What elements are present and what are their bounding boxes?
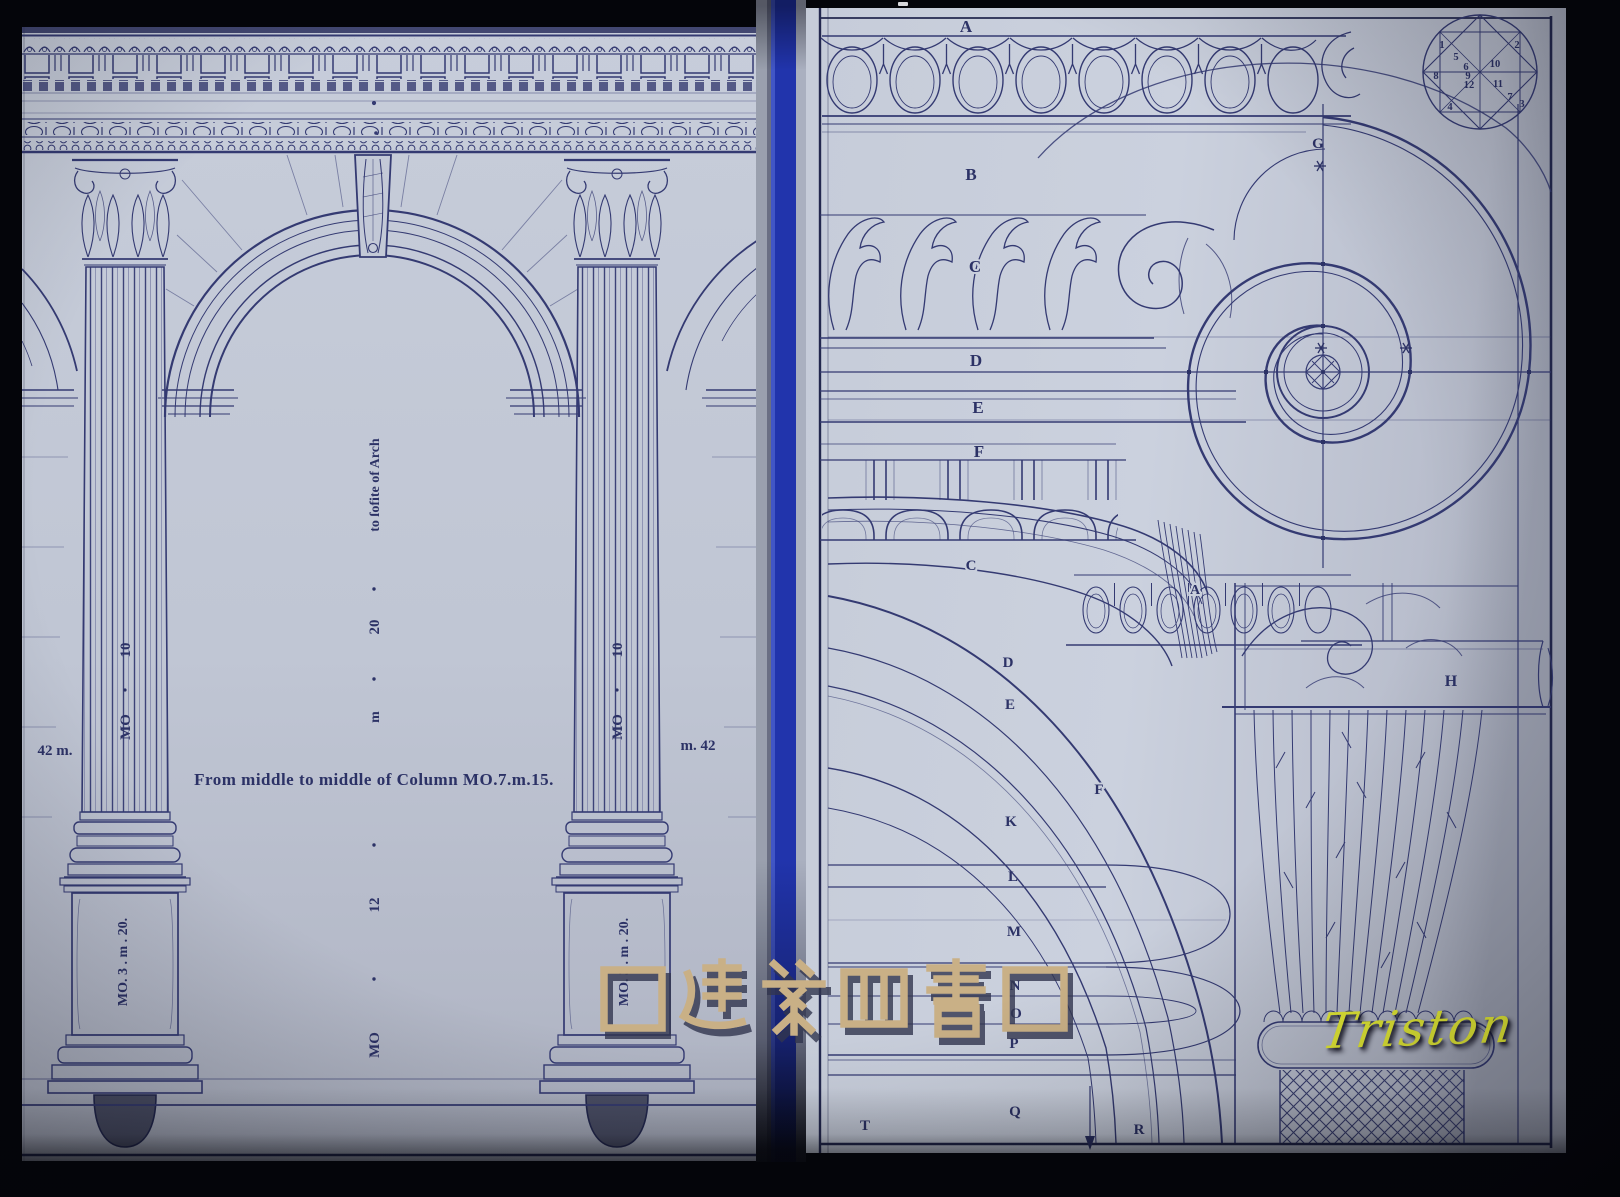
label-t: T [860, 1118, 870, 1134]
eye-num-1: 1 [1439, 40, 1444, 51]
eye-num-10: 10 [1490, 59, 1501, 70]
left-shaft-value: 10 [118, 643, 134, 658]
label-m: M [1007, 924, 1021, 940]
volute-eye-diagram [1423, 15, 1537, 129]
eye-num-4: 4 [1447, 102, 1453, 113]
eye-num-7: 7 [1507, 92, 1512, 103]
right-margin-dim: m. 42 [681, 738, 716, 754]
label-d: D [970, 351, 982, 370]
label-a-ovolo: A [1190, 583, 1201, 598]
center-dim-target: to ſofite of Arch [368, 438, 383, 532]
center-dim-upper-unit: m [368, 711, 383, 723]
caption-span-dim: From middle to middle of Column MO.7.m.1… [194, 770, 554, 789]
entablature [22, 27, 758, 152]
label-g: G [1312, 136, 1324, 152]
label-k: K [1005, 814, 1017, 830]
dust-speck [898, 2, 908, 6]
left-shaft-unit: MO [118, 714, 134, 740]
label-c: C [969, 257, 981, 276]
watermark-text: 囗建築四書囗 [598, 958, 1078, 1042]
eye-num-12: 12 [1464, 80, 1475, 91]
label-e2: E [1005, 697, 1015, 713]
label-f2: F [1094, 782, 1103, 798]
label-e: E [972, 398, 983, 417]
left-margin-dim: 42 m. [38, 743, 73, 759]
label-r: R [1134, 1122, 1145, 1138]
right-shaft-unit: MO [610, 714, 626, 740]
right-shaft-value: 10 [610, 643, 626, 658]
label-l: L [1008, 869, 1018, 885]
eye-num-11: 11 [1493, 79, 1503, 90]
label-d2: D [1003, 655, 1014, 671]
label-a: A [960, 17, 973, 36]
label-q: Q [1009, 1104, 1021, 1120]
label-h: H [1445, 673, 1458, 690]
center-dim-upper-value: 20 [367, 620, 383, 635]
book-photo: From middle to middle of Column MO.7.m.1… [0, 0, 1620, 1197]
eye-num-8: 8 [1433, 71, 1438, 82]
center-dim-lower-value: 12 [367, 898, 383, 913]
center-dim-lower-unit: MO [367, 1032, 383, 1058]
eye-num-2: 2 [1514, 40, 1519, 51]
label-b: B [965, 165, 976, 184]
eye-num-3: 3 [1519, 99, 1524, 110]
signature-text: Triston [1318, 996, 1518, 1060]
left-pedestal-dim: MO. 3 . m . 20. [116, 918, 131, 1006]
label-c2: C [966, 558, 977, 574]
keystone [355, 155, 391, 257]
eye-num-5: 5 [1453, 52, 1458, 63]
label-f: F [974, 442, 984, 461]
